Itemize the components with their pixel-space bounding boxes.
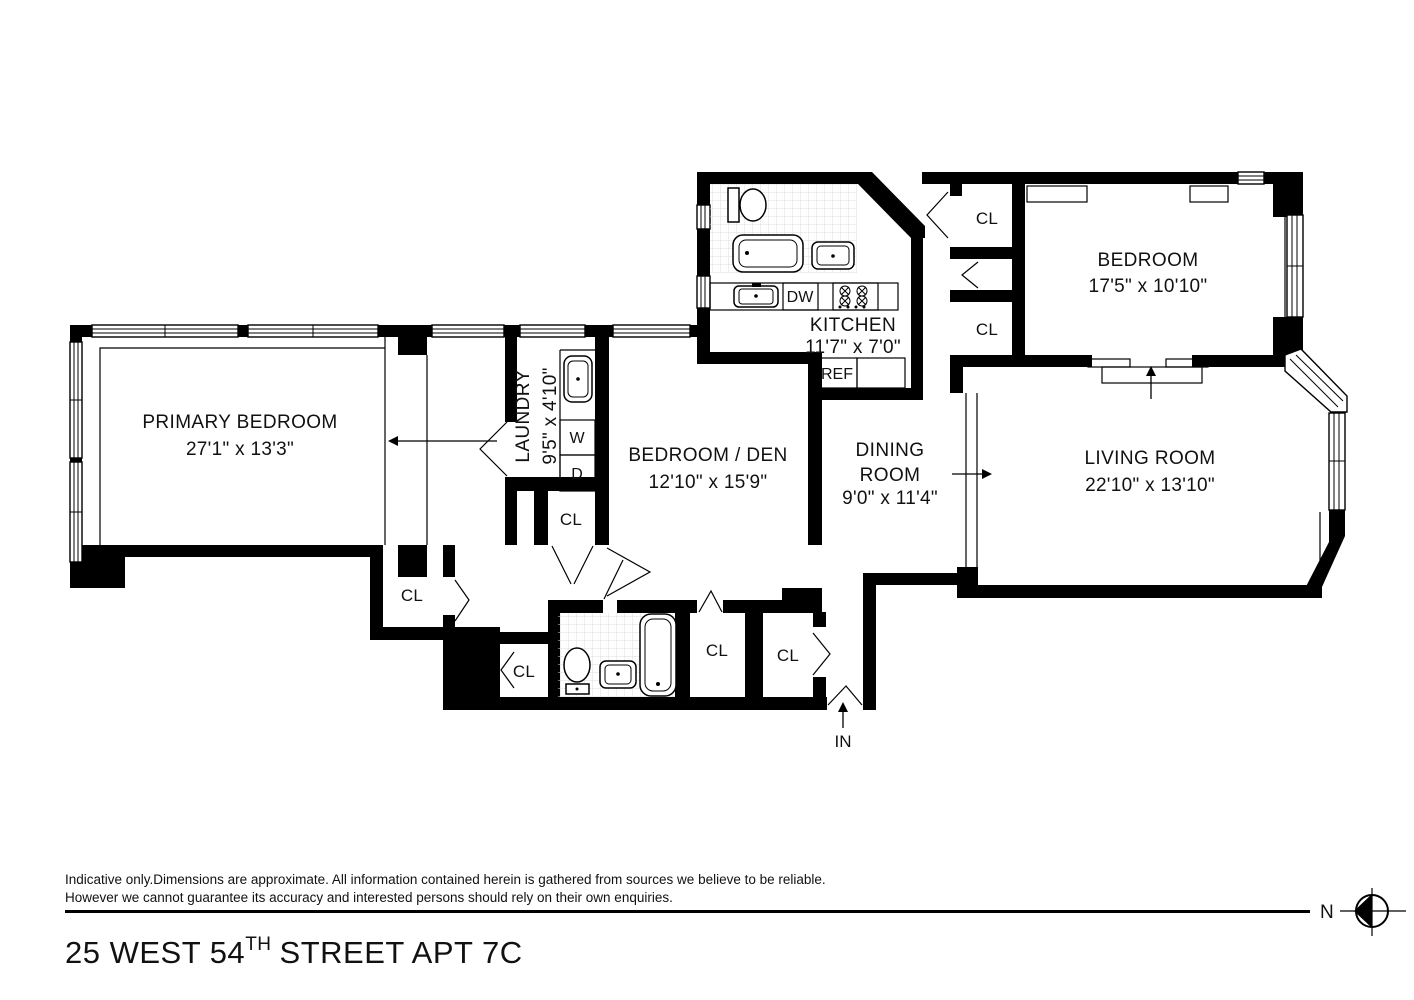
- bedroom-label: BEDROOM: [1098, 250, 1199, 271]
- window: [92, 325, 238, 337]
- closet-label: CL: [706, 641, 728, 660]
- sliding-door-leaf: [1088, 359, 1130, 367]
- closet-label: CL: [513, 662, 535, 681]
- north-label: N: [1320, 902, 1334, 923]
- laundry-door-swing: [480, 422, 507, 476]
- bedroom-den-label: BEDROOM / DEN: [628, 445, 787, 466]
- closet-door-swing: [699, 591, 722, 612]
- footer: Indicative only.Dimensions are approxima…: [65, 872, 1406, 970]
- laundry-sink: [564, 356, 592, 402]
- bathtub: [733, 235, 803, 272]
- kitchen-dims: 11'7" x 7'0": [805, 337, 901, 358]
- toilet: [564, 648, 590, 694]
- disclaimer-line1: Indicative only.Dimensions are approxima…: [65, 872, 826, 887]
- dining-room-label-line1: DINING: [856, 440, 925, 461]
- toilet: [728, 188, 766, 222]
- window: [1329, 413, 1345, 510]
- living-room-dims: 22'10" x 13'10": [1085, 475, 1215, 496]
- laundry-label: LAUNDRY: [513, 369, 534, 462]
- dining-room-dims: 9'0" x 11'4": [842, 488, 938, 509]
- living-room-label: LIVING ROOM: [1084, 448, 1215, 469]
- window: [432, 325, 504, 337]
- refrigerator-label: REF: [821, 366, 853, 383]
- closet-label: CL: [976, 209, 998, 228]
- window: [1287, 215, 1303, 317]
- disclaimer-line2: However we cannot guarantee its accuracy…: [65, 890, 673, 905]
- entry-door-swing: [828, 686, 862, 705]
- floor-plan-drawing: PRIMARY BEDROOM 27'1" x 13'3" LAUNDRY 9'…: [0, 0, 1414, 1000]
- bay-window-diagonal: [1285, 349, 1347, 412]
- door-arrow: [952, 469, 992, 479]
- laundry-dims: 9'5" x 4'10": [540, 367, 561, 464]
- washer-label: W: [569, 430, 585, 447]
- dryer-label: D: [571, 466, 583, 483]
- window: [70, 462, 82, 562]
- bedroom-builtin: [1190, 186, 1228, 202]
- page-title: 25 WEST 54THSTREET APT 7C: [65, 934, 523, 970]
- closet-door-swing: [455, 580, 469, 621]
- bathtub: [640, 614, 676, 696]
- den-door-swing: [607, 548, 650, 596]
- separator-rule: [65, 910, 1310, 913]
- entry-label: IN: [835, 732, 852, 751]
- sink: [812, 242, 854, 269]
- bathroom-door-swing: [927, 192, 948, 238]
- entry-arrow: [838, 702, 848, 728]
- room-labels: PRIMARY BEDROOM 27'1" x 13'3" LAUNDRY 9'…: [142, 250, 1215, 509]
- floorplan-page: PRIMARY BEDROOM 27'1" x 13'3" LAUNDRY 9'…: [0, 0, 1414, 1000]
- window: [613, 325, 690, 337]
- hall-closet-door-swing: [962, 262, 978, 288]
- window: [70, 342, 82, 458]
- window: [520, 325, 585, 337]
- kitchen-label: KITCHEN: [810, 315, 896, 336]
- bedroom-dims: 17'5" x 10'10": [1089, 276, 1208, 297]
- dining-room-label-line2: ROOM: [860, 465, 921, 486]
- closet-label: CL: [560, 510, 582, 529]
- window: [1238, 172, 1264, 184]
- closet-label: CL: [401, 586, 423, 605]
- compass-needle: [1354, 894, 1372, 928]
- kitchen-sink: [734, 283, 778, 307]
- dining-living-opening-lines: [966, 393, 977, 567]
- closet-double-door-swing: [552, 546, 593, 584]
- closet-label: CL: [976, 320, 998, 339]
- bedroom-builtin: [1027, 186, 1087, 202]
- primary-bedroom-dims: 27'1" x 13'3": [186, 439, 294, 460]
- north-compass: N: [1320, 888, 1406, 936]
- closet-label: CL: [777, 646, 799, 665]
- window: [697, 276, 710, 308]
- bedroom-den-dims: 12'10" x 15'9": [649, 472, 768, 493]
- bathroom-door-leaf: [604, 560, 623, 599]
- stove-burners: [839, 286, 868, 309]
- dishwasher-label: DW: [787, 289, 815, 306]
- kitchen-counter-piece: [857, 358, 905, 388]
- closet-door-swing: [813, 633, 830, 675]
- sink: [600, 661, 636, 688]
- door-arrow: [388, 436, 497, 446]
- window: [697, 205, 710, 229]
- primary-bedroom-label: PRIMARY BEDROOM: [142, 412, 337, 433]
- window: [248, 325, 378, 337]
